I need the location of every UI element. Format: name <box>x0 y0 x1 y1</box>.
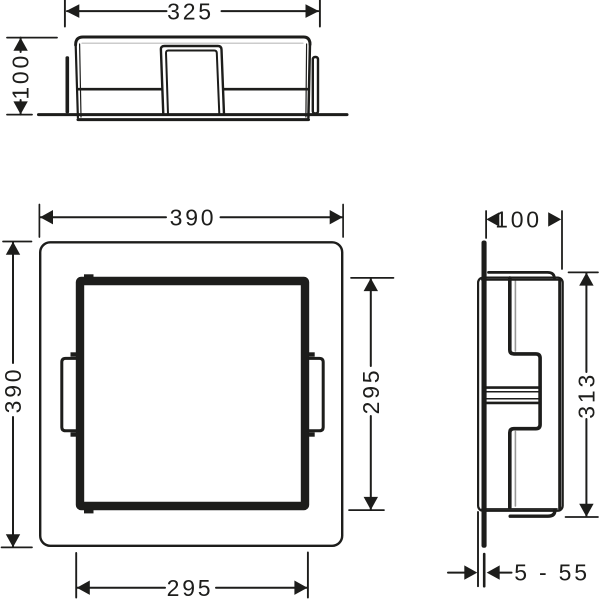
svg-text:390: 390 <box>0 367 26 414</box>
svg-text:5 - 55: 5 - 55 <box>514 560 590 586</box>
svg-text:390: 390 <box>170 204 217 230</box>
svg-text:313: 313 <box>573 372 599 419</box>
svg-text:100: 100 <box>495 206 542 232</box>
svg-text:325: 325 <box>167 0 214 25</box>
svg-text:295: 295 <box>358 368 384 415</box>
svg-text:295: 295 <box>167 575 214 600</box>
svg-text:100: 100 <box>7 53 33 100</box>
